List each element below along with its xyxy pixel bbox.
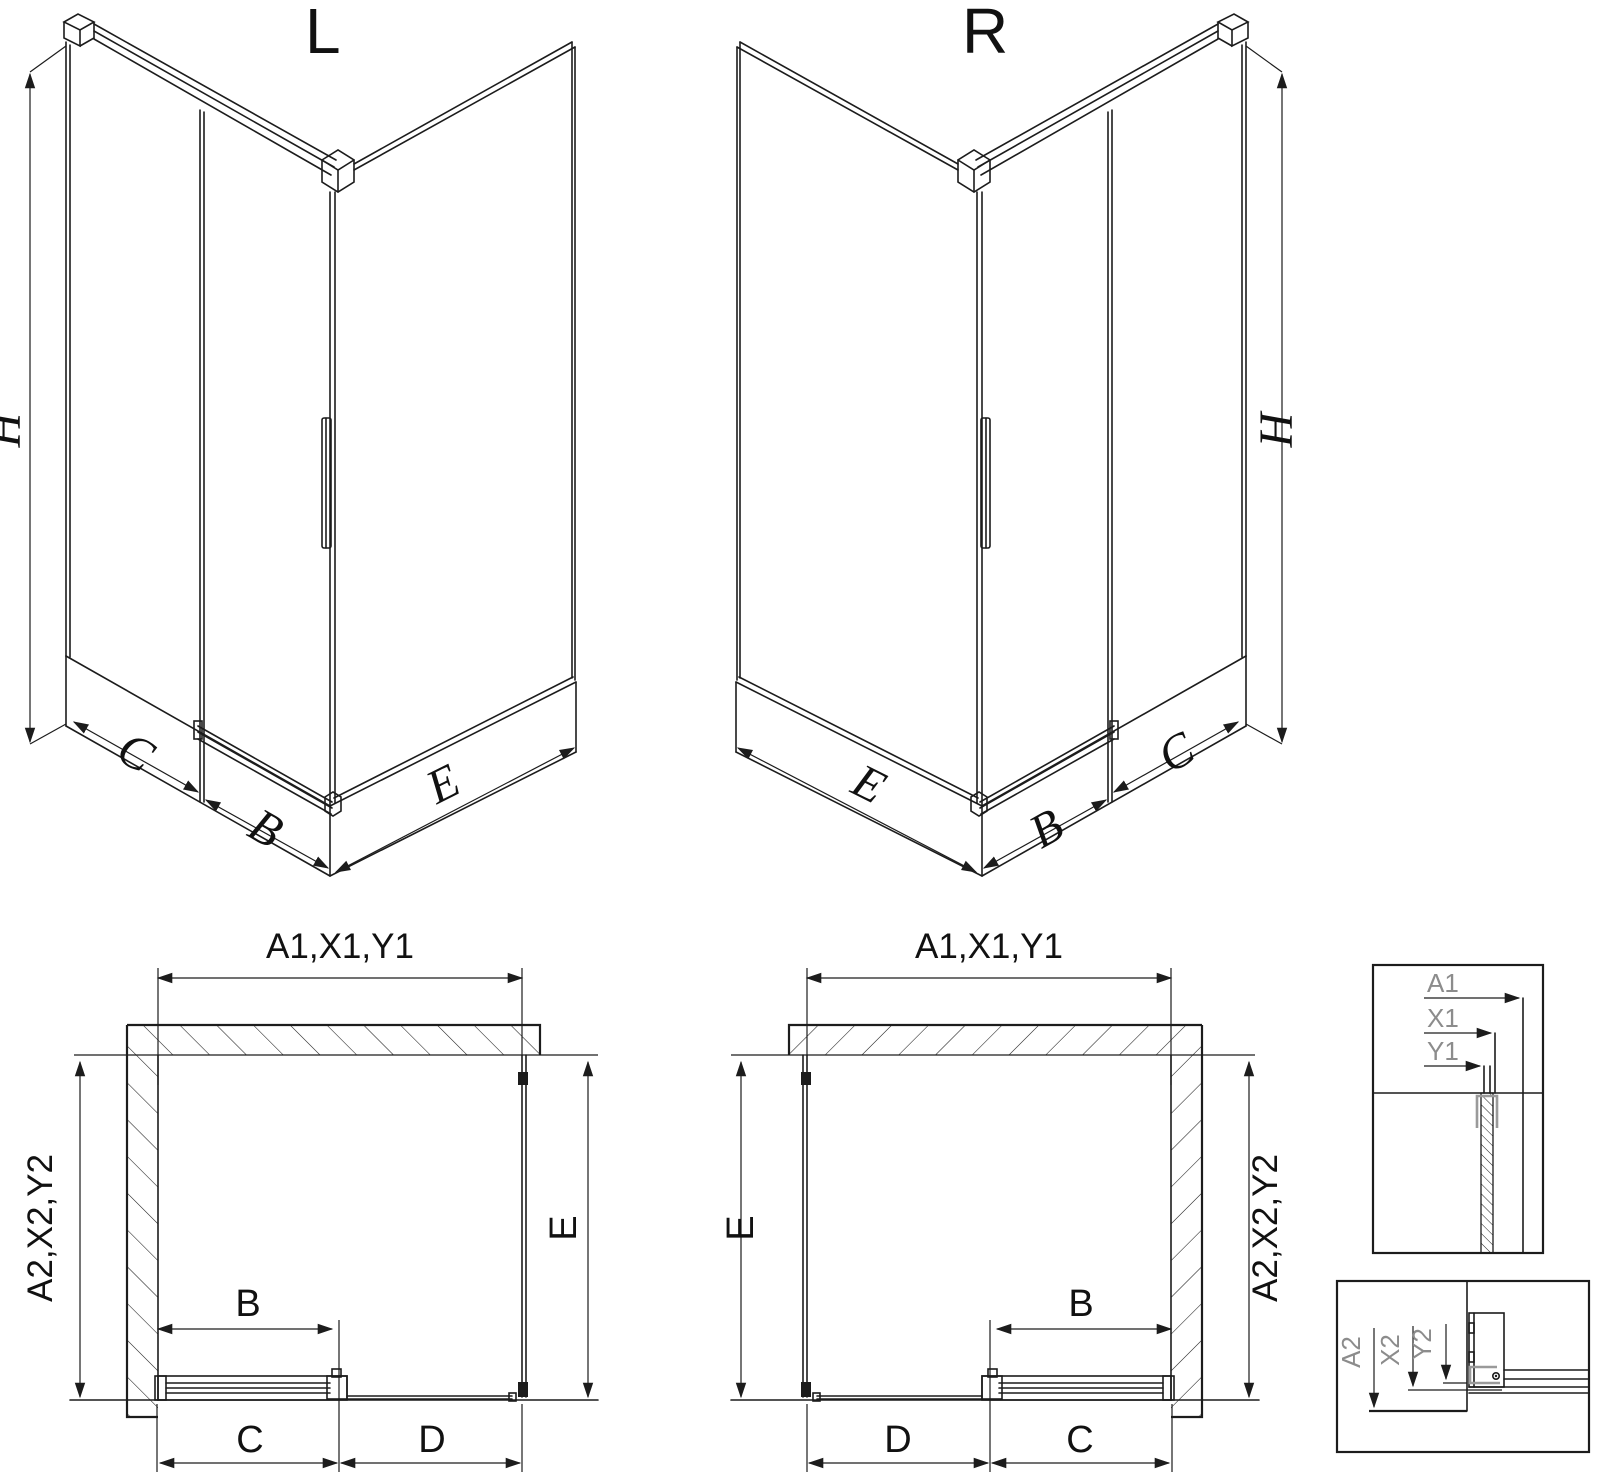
plan-left-d-dim: D: [418, 1419, 445, 1461]
dim-label-h-right: H: [1250, 410, 1303, 448]
dim-label-c-left: C: [109, 722, 164, 784]
dim-label-e-right: E: [843, 753, 894, 814]
dim-label-c-right: C: [1149, 721, 1204, 783]
detail-x1-label: X1: [1427, 1003, 1459, 1033]
plan-left-c-dim: C: [236, 1419, 263, 1461]
plan-view-right: A1,X1,Y1 A2,X2,Y2 E B D C: [720, 927, 1285, 1472]
plan-left-side-dim: A2,X2,Y2: [21, 1154, 60, 1302]
drawing-canvas: L H C B E R H C B E A1,X1,Y1 A2,X2,Y2 E …: [0, 0, 1600, 1474]
iso-view-left: L H C B E: [0, 0, 576, 876]
detail-a1-label: A1: [1427, 968, 1459, 998]
variant-label-left: L: [305, 0, 341, 67]
plan-right-top-dim: A1,X1,Y1: [915, 927, 1063, 966]
dim-label-h-left: H: [0, 410, 31, 448]
plan-right-d-dim: D: [884, 1419, 911, 1461]
variant-label-right: R: [962, 0, 1008, 67]
detail-a2-label: A2: [1336, 1336, 1366, 1368]
detail-y1-label: Y1: [1427, 1036, 1459, 1066]
plan-right-side-dim: A2,X2,Y2: [1246, 1154, 1285, 1302]
plan-left-e-dim: E: [543, 1215, 585, 1240]
detail-y2-label: Y2: [1407, 1328, 1437, 1360]
detail-wall-profile: A1 X1 Y1: [1373, 965, 1543, 1253]
plan-right-c-dim: C: [1066, 1419, 1093, 1461]
plan-view-left: A1,X1,Y1 A2,X2,Y2 E B C D: [21, 927, 598, 1472]
iso-view-right: R H C B E: [736, 0, 1303, 876]
plan-left-b-dim: B: [235, 1283, 260, 1325]
plan-left-top-dim: A1,X1,Y1: [266, 927, 414, 966]
dim-label-e-left: E: [417, 754, 468, 815]
shower-enclosure-technical-drawing: L H C B E R H C B E A1,X1,Y1 A2,X2,Y2 E …: [0, 0, 1600, 1474]
plan-right-b-dim: B: [1068, 1283, 1093, 1325]
detail-rail-section: A2 X2 Y2: [1336, 1281, 1589, 1452]
plan-right-e-dim: E: [720, 1215, 762, 1240]
detail-x2-label: X2: [1375, 1334, 1405, 1366]
